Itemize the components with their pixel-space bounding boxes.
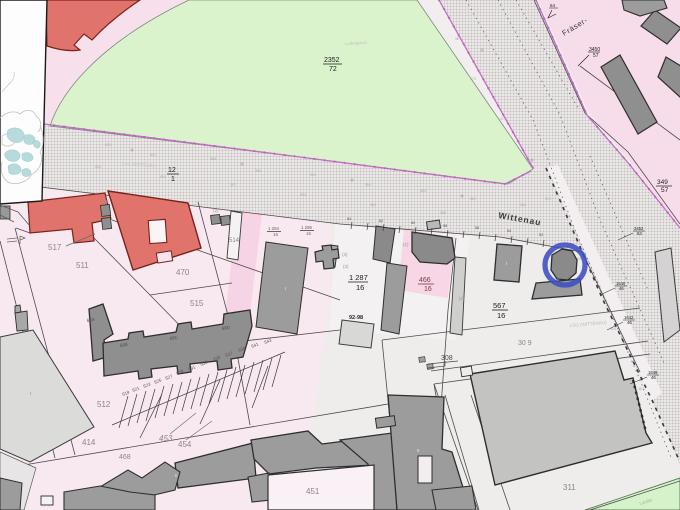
svg-text:II: II	[417, 448, 420, 453]
svg-text:(4): (4)	[420, 358, 426, 363]
svg-text:567: 567	[493, 301, 506, 310]
svg-text:16: 16	[424, 286, 432, 293]
svg-text:40.1: 40.1	[150, 153, 156, 157]
svg-text:64: 64	[550, 3, 556, 8]
svg-text:53: 53	[637, 231, 642, 236]
svg-text:46: 46	[619, 286, 624, 291]
svg-text:12: 12	[168, 167, 176, 174]
svg-text:38.8: 38.8	[440, 211, 446, 215]
svg-text:349: 349	[657, 179, 668, 186]
svg-text:16: 16	[356, 283, 364, 292]
svg-text:39.4: 39.4	[310, 173, 316, 177]
svg-text:(1): (1)	[403, 242, 409, 247]
svg-text:39.3: 39.3	[300, 193, 306, 197]
svg-text:466: 466	[419, 277, 431, 284]
svg-text:60: 60	[411, 221, 415, 225]
svg-text:1 286: 1 286	[301, 225, 313, 230]
svg-text:54: 54	[507, 229, 511, 233]
svg-text:39.6: 39.6	[255, 169, 261, 173]
svg-text:470: 470	[176, 268, 190, 277]
svg-text:311: 311	[563, 483, 576, 492]
svg-text:451: 451	[306, 487, 320, 496]
svg-text:40.2: 40.2	[95, 165, 101, 169]
svg-text:37.9: 37.9	[470, 77, 476, 81]
svg-text:1: 1	[171, 176, 175, 183]
svg-text:72: 72	[329, 66, 337, 73]
svg-text:39.0: 39.0	[370, 203, 376, 207]
svg-text:56: 56	[475, 226, 479, 230]
svg-text:39.8: 39.8	[210, 157, 216, 161]
svg-text:414: 414	[82, 438, 96, 447]
svg-text:46: 46	[651, 375, 656, 380]
svg-text:I: I	[30, 391, 31, 396]
svg-text:(2): (2)	[213, 208, 219, 213]
svg-text:1 284: 1 284	[268, 226, 280, 231]
svg-text:57: 57	[593, 53, 599, 59]
svg-text:16: 16	[273, 232, 278, 237]
svg-text:512: 512	[97, 400, 111, 409]
svg-text:38: 38	[455, 37, 459, 41]
svg-text:I: I	[506, 261, 507, 266]
svg-text:40.3: 40.3	[105, 143, 111, 147]
svg-text:16: 16	[306, 231, 311, 236]
svg-text:(2): (2)	[459, 296, 465, 301]
svg-text:30 9: 30 9	[518, 340, 532, 347]
svg-text:515: 515	[190, 299, 204, 308]
svg-text:517: 517	[48, 243, 62, 252]
svg-text:39.1: 39.1	[365, 183, 371, 187]
svg-text:I: I	[285, 286, 286, 291]
svg-text:57: 57	[661, 187, 669, 194]
svg-text:39.7: 39.7	[230, 183, 236, 187]
svg-text:I: I	[555, 466, 556, 471]
svg-text:37.2: 37.2	[545, 197, 551, 201]
svg-text:1 287: 1 287	[349, 273, 368, 282]
svg-text:46: 46	[627, 320, 632, 325]
svg-text:308: 308	[441, 355, 453, 362]
svg-text:38.5: 38.5	[520, 203, 526, 207]
svg-text:453: 453	[159, 434, 173, 443]
svg-text:38.9: 38.9	[420, 189, 426, 193]
svg-text:38.7: 38.7	[470, 197, 476, 201]
svg-text:II: II	[175, 473, 178, 478]
svg-text:2352: 2352	[324, 57, 340, 64]
svg-text:64: 64	[347, 217, 351, 221]
svg-text:36.2: 36.2	[638, 387, 644, 391]
svg-text:16: 16	[497, 311, 505, 320]
svg-text:511: 511	[76, 261, 89, 270]
svg-text:58: 58	[443, 224, 447, 228]
svg-text:454: 454	[178, 440, 192, 449]
svg-text:(2): (2)	[343, 264, 349, 269]
svg-text:40.0: 40.0	[160, 175, 166, 179]
svg-text:514: 514	[229, 238, 240, 244]
svg-text:36.5: 36.5	[610, 327, 616, 331]
svg-text:(1): (1)	[104, 199, 110, 204]
svg-text:52: 52	[539, 233, 543, 237]
svg-text:(3): (3)	[342, 252, 348, 257]
svg-text:62: 62	[379, 219, 383, 223]
svg-text:468: 468	[119, 454, 131, 461]
svg-text:92-98: 92-98	[349, 315, 363, 321]
